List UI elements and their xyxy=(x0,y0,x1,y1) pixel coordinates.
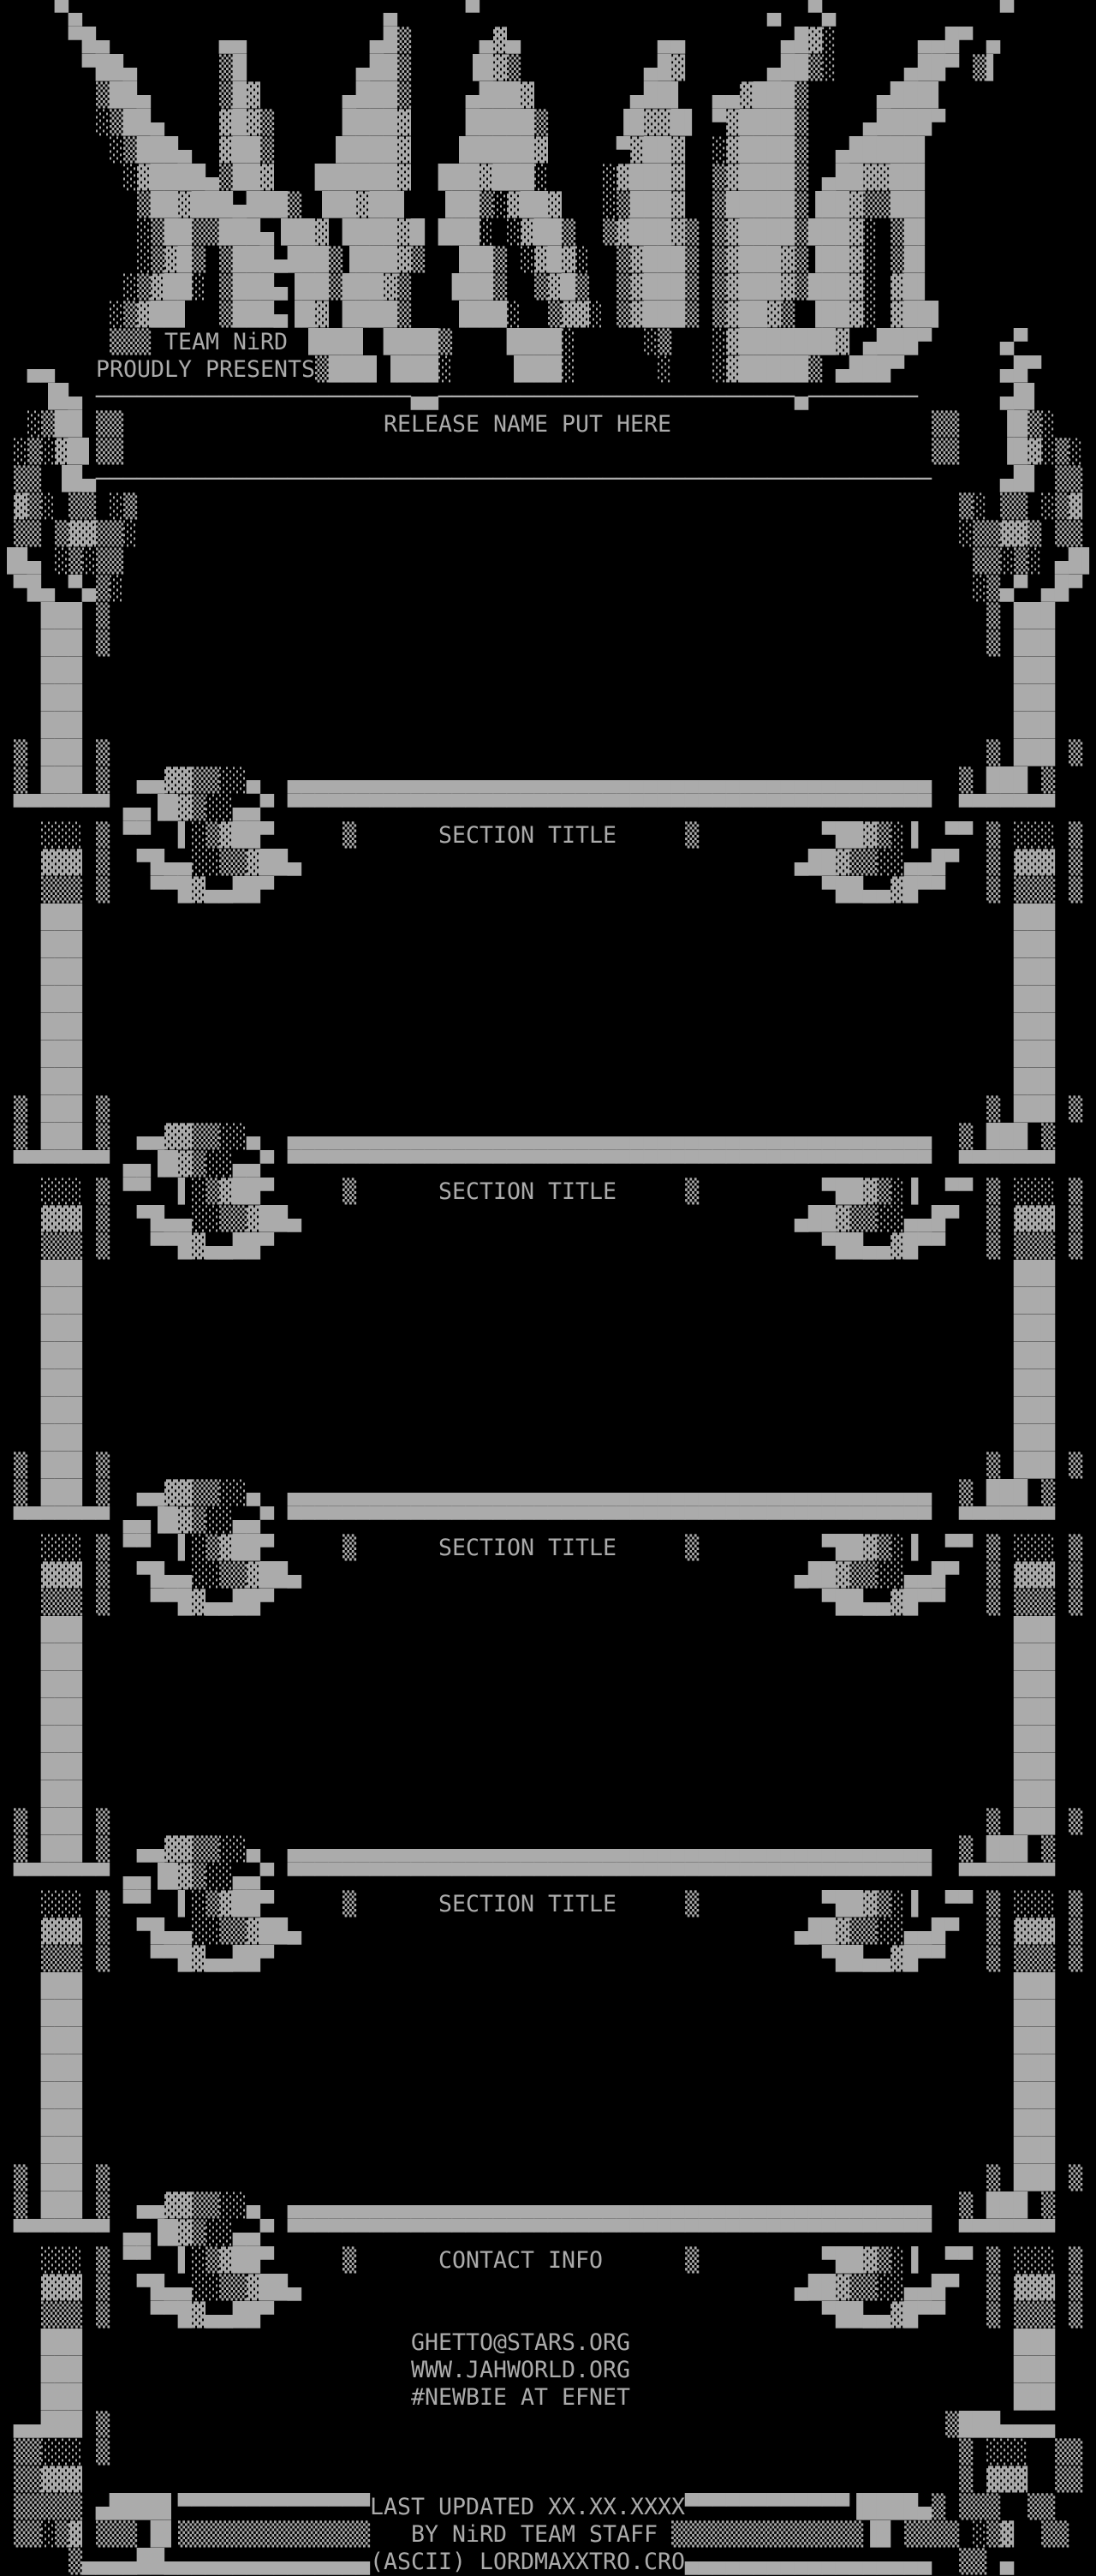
nfo-page: ▀▄ ▄ ▀ ▄ ▀▄ ▀ ▀█▄ ▄▄ ▄█▒ ▄▓▄ ▄▄ ▄█▓░ ▄▄█… xyxy=(0,0,1096,2576)
nfo-ascii-art: ▀▄ ▄ ▀ ▄ ▀▄ ▀ ▀█▄ ▄▄ ▄█▒ ▄▓▄ ▄▄ ▄█▓░ ▄▄█… xyxy=(0,0,1096,2576)
contact-title: CONTACT INFO xyxy=(438,2247,603,2275)
section-title-1: SECTION TITLE xyxy=(438,822,616,850)
contact-website: WWW.JAHWORLD.ORG xyxy=(411,2357,630,2384)
footer-ascii-credit: (ASCII) LORDMAXXTRO.CRO xyxy=(370,2549,685,2576)
footer-credit: BY NiRD TEAM STAFF xyxy=(411,2521,658,2549)
section-title-2: SECTION TITLE xyxy=(438,1178,616,1206)
footer-last-updated: LAST UPDATED XX.XX.XXXX xyxy=(370,2494,685,2521)
presents-line: PROUDLY PRESENTS xyxy=(96,356,315,384)
contact-irc: #NEWBIE AT EFNET xyxy=(411,2384,630,2412)
section-title-4: SECTION TITLE xyxy=(438,1891,616,1918)
team-name: TEAM NiRD xyxy=(164,329,288,356)
contact-email: GHETTO@STARS.ORG xyxy=(411,2329,630,2357)
section-title-3: SECTION TITLE xyxy=(438,1535,616,1562)
release-name: RELEASE NAME PUT HERE xyxy=(384,411,671,438)
